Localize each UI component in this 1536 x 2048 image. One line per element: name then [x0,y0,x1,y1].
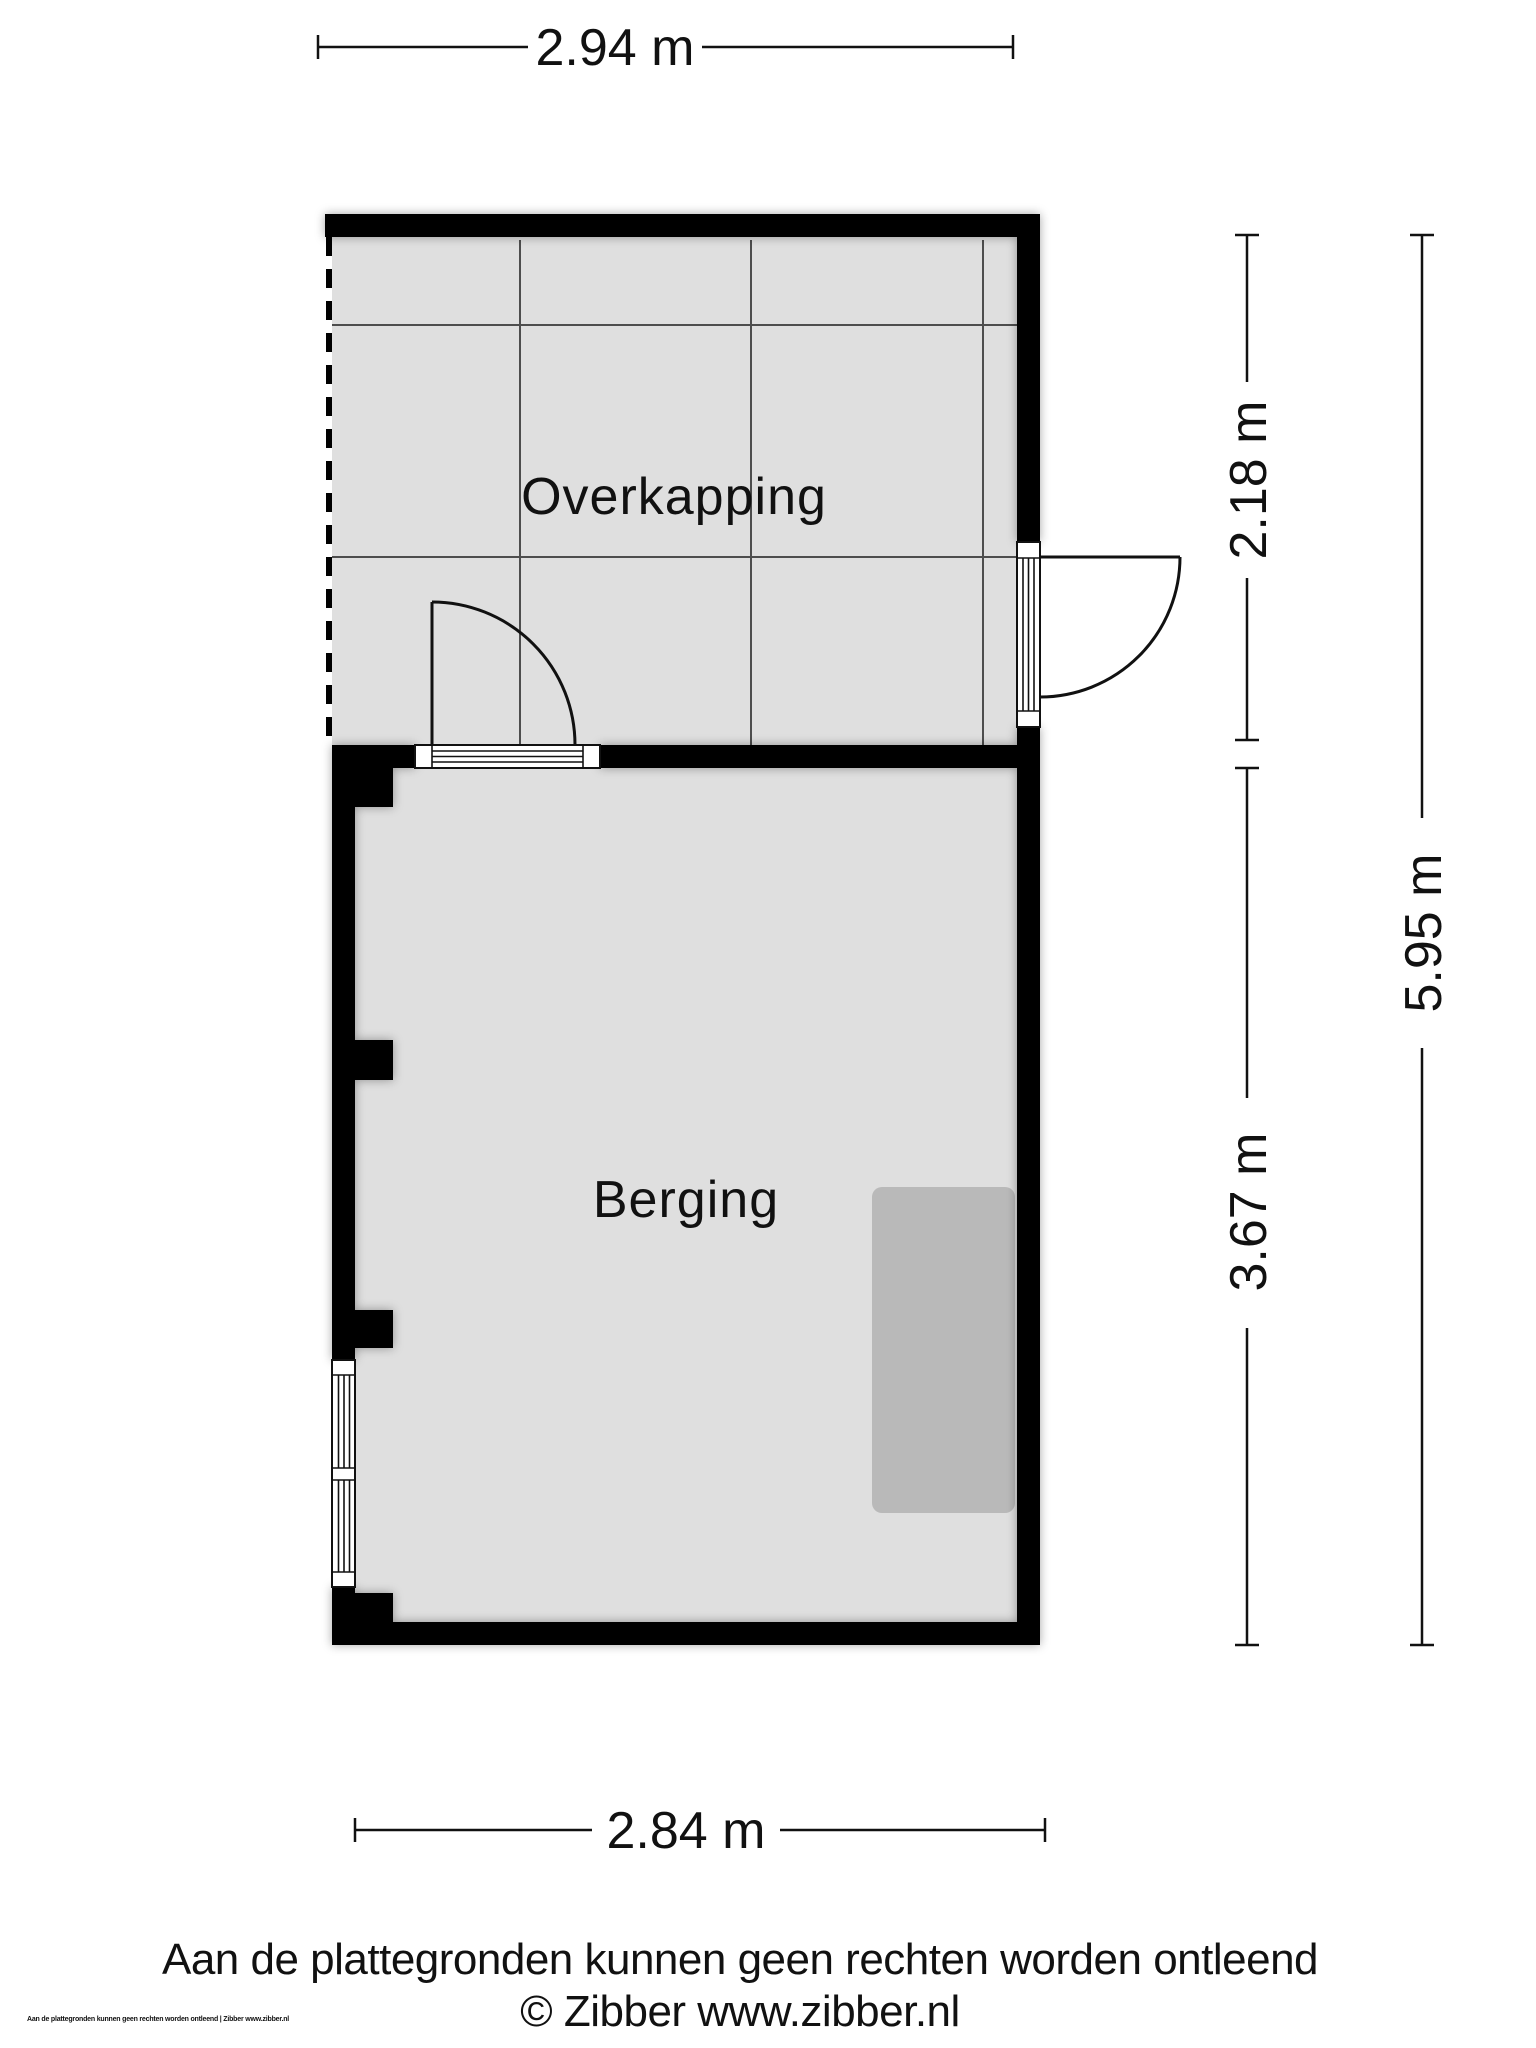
disclaimer-text: Aan de plattegronden kunnen geen rechten… [162,1935,1318,1984]
dimension-label-right-full: 5.95 m [1395,854,1453,1013]
door-swing-arc [1040,557,1180,697]
berging-right-wall [1017,768,1040,1645]
dimension-label-right-upper: 2.18 m [1220,401,1278,560]
dimension-label-bottom: 2.84 m [607,1802,766,1860]
floorplan-canvas: Overkapping Berging 2.94 m 2.84 m 2.18 m… [0,0,1536,2048]
left-wall-windows [332,1360,355,1587]
berging-bottom-wall [332,1622,1040,1645]
overkapping-top-wall [325,214,1040,237]
wall-pillar [355,1040,393,1080]
berging-left-wall-upper [332,745,355,1360]
storage-object [872,1187,1015,1513]
wall-pillar [355,1593,393,1622]
dimension-label-right-lower: 3.67 m [1220,1133,1278,1292]
exterior-door [1017,542,1180,727]
overkapping-right-wall-upper [1017,237,1040,542]
dimension-bottom: 2.84 m [355,1802,1045,1860]
footer: Aan de plattegronden kunnen geen rechten… [27,1935,1318,2036]
copyright-text: © Zibber www.zibber.nl [520,1987,960,2036]
dimension-label-top: 2.94 m [536,19,695,77]
dimension-top: 2.94 m [318,19,1013,77]
fine-print-text: Aan de plattegronden kunnen geen rechten… [27,2016,289,2023]
wall-pillar [355,1310,393,1348]
room-label-overkapping: Overkapping [521,468,827,526]
room-label-berging: Berging [593,1171,779,1229]
dimension-right-full: 5.95 m [1395,235,1453,1645]
divider-wall-right [600,745,1040,768]
dimension-right-upper: 2.18 m [1220,235,1278,740]
dimension-right-lower: 3.67 m [1220,768,1278,1645]
wall-pillar [355,763,393,807]
